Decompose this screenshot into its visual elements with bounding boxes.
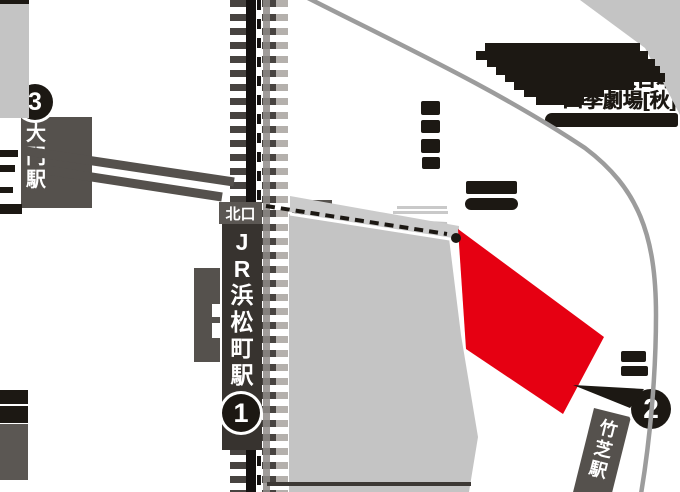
road-stub-left-3 — [0, 187, 13, 193]
landmark-pill — [545, 113, 678, 127]
rail-track-right-light — [276, 0, 288, 492]
pedestrian-deck-label: 歩行者デッキ — [322, 236, 418, 257]
deck-stair-3 — [294, 224, 330, 231]
road-stub-bottom-left-2 — [0, 406, 28, 423]
daimon-station-bar: 大門駅 — [21, 117, 92, 208]
landmark-label-line2: 四季劇場[秋] — [496, 91, 676, 112]
marker-1: 1 — [222, 394, 260, 432]
garden-label-line2: 恩賜庭園 — [326, 332, 412, 353]
route-end-dot — [451, 233, 461, 243]
obscured-label-takeshiba-2 — [621, 366, 648, 376]
hatch-bar-1 — [485, 43, 640, 52]
daimon-station-label: 大門駅 — [24, 123, 48, 192]
road-stub-bottom-left-1 — [0, 390, 28, 404]
hatch-bar-2 — [476, 51, 648, 60]
takeshiba-station-bar: 竹芝駅 — [567, 408, 630, 492]
hatch-bar-3 — [487, 59, 655, 67]
obscured-label-pill — [465, 198, 518, 210]
access-map: 大門駅 北口 JR浜松町駅 竹芝駅 — [0, 0, 680, 492]
obscured-vertical-label-4 — [422, 157, 440, 169]
garden-label-line1: 旧芝離宮 — [326, 311, 412, 332]
marker-3: 3 — [17, 84, 53, 120]
landmark-label: JR東日本 四季劇場[秋] — [496, 70, 676, 112]
station-building — [194, 268, 220, 362]
road-stub-left-1 — [0, 150, 18, 157]
block-bottom-left — [0, 424, 28, 480]
landmark-label-line1: JR東日本 — [496, 70, 676, 91]
road-stub-top-left — [0, 0, 29, 4]
obscured-vertical-label-1 — [421, 101, 440, 115]
obscured-label-row — [466, 181, 517, 194]
takeshiba-station-label: 竹芝駅 — [577, 415, 629, 485]
road-stub-left-4 — [0, 204, 22, 214]
garden-label: 旧芝離宮 恩賜庭園 — [326, 311, 412, 353]
road-stub-left-2 — [0, 165, 15, 172]
building-notch-2 — [212, 323, 220, 338]
deck-stair-2 — [292, 212, 331, 219]
obscured-vertical-label-2 — [421, 120, 440, 133]
destination-building — [458, 229, 604, 414]
road-mark-1 — [397, 206, 447, 209]
obscured-vertical-label-3 — [421, 139, 440, 153]
marker-2: 2 — [631, 389, 671, 429]
obscured-label-takeshiba-1 — [621, 351, 646, 362]
monorail-line — [263, 0, 270, 492]
deck-stair-1 — [291, 200, 332, 207]
building-notch-1 — [212, 304, 220, 317]
hamamatsucho-station-label: JR浜松町駅 — [222, 229, 262, 388]
north-exit-label: 北口 — [219, 202, 262, 224]
road-mark-2 — [393, 211, 448, 214]
